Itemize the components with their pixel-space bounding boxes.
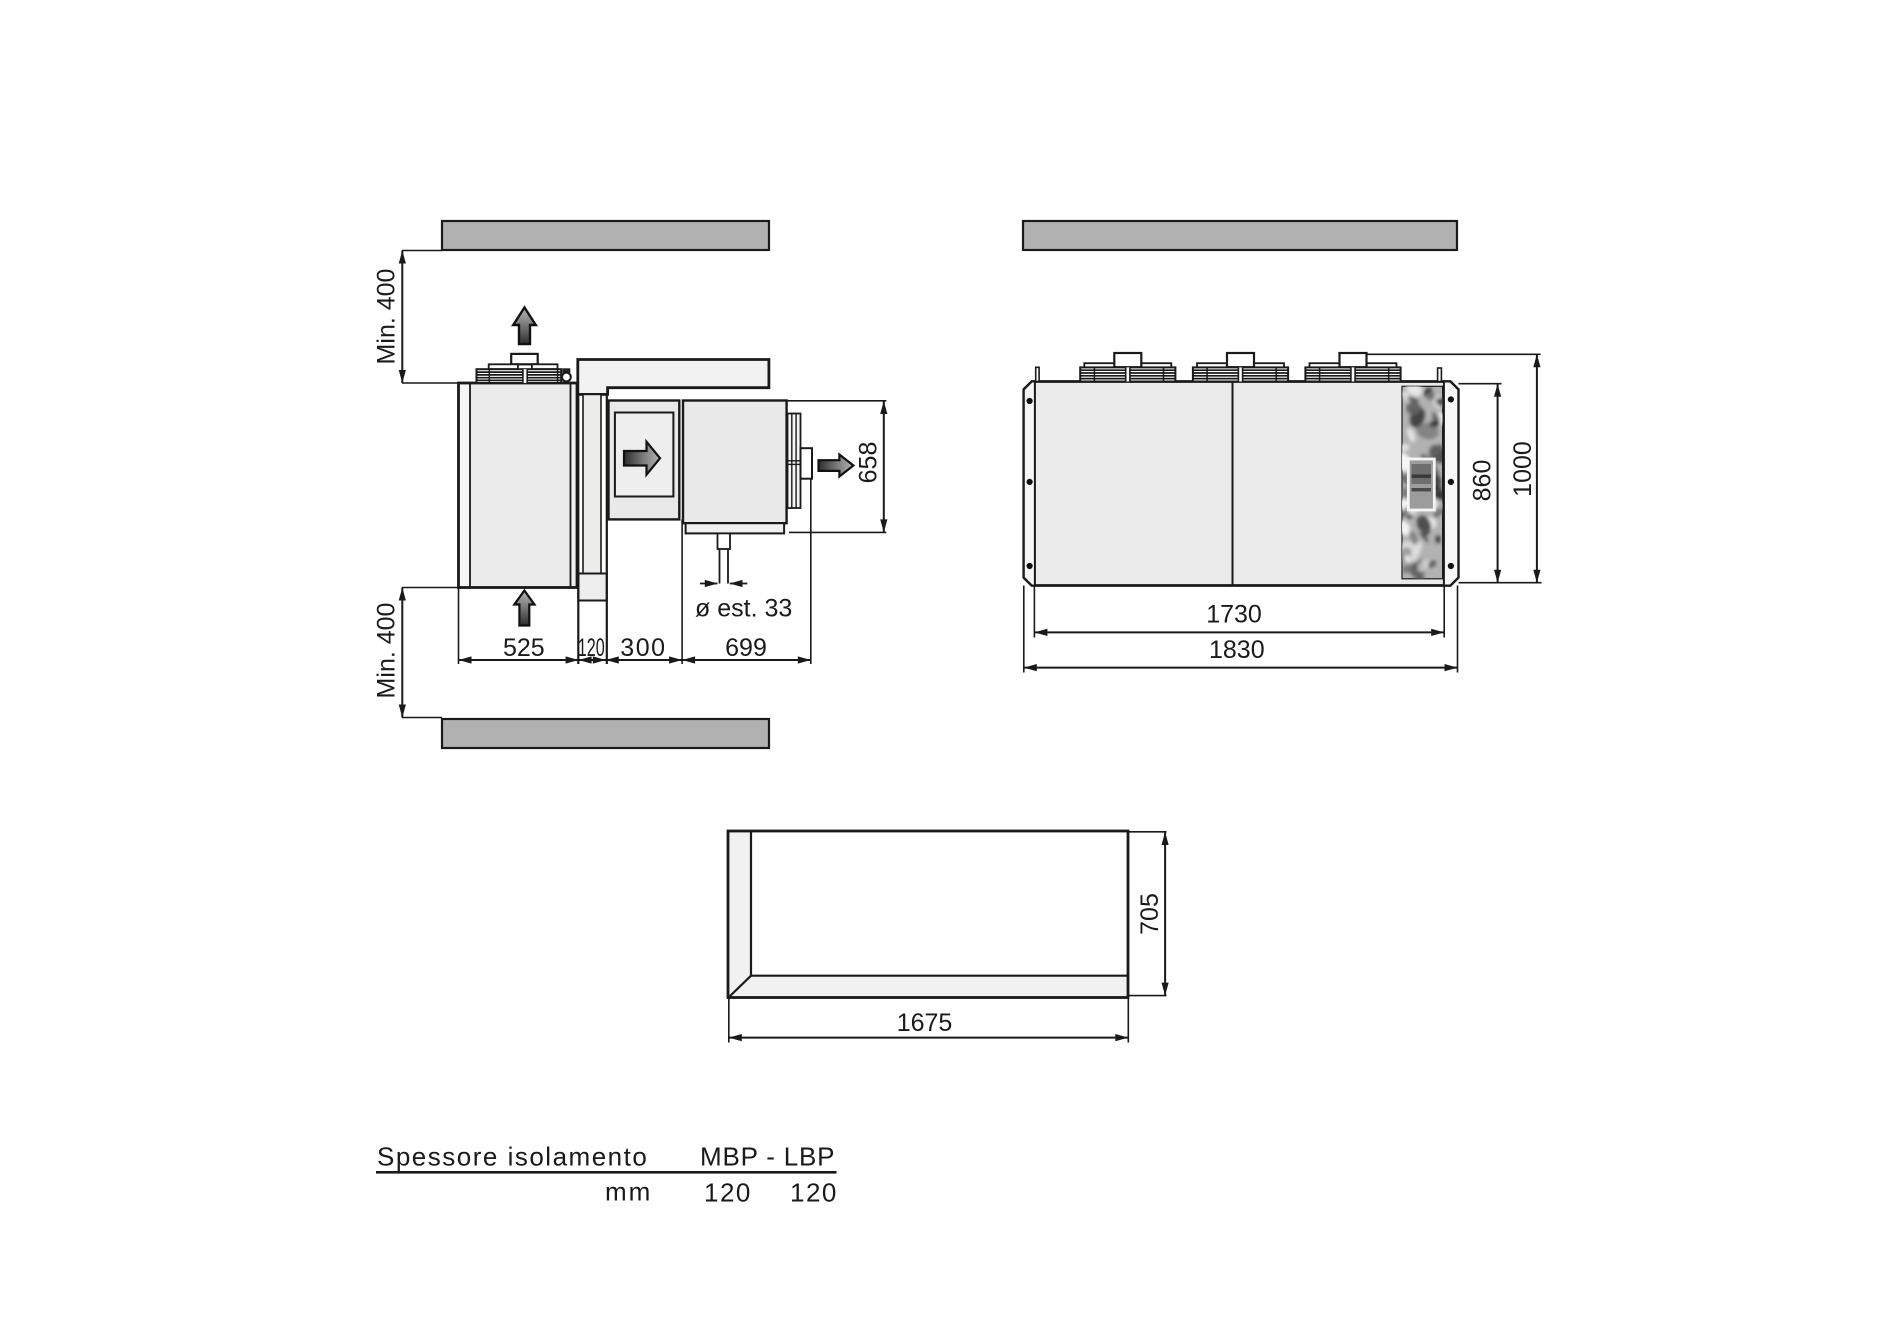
svg-text:699: 699 [725,634,767,662]
svg-text:1830: 1830 [1209,636,1265,664]
svg-text:658: 658 [855,442,883,484]
svg-text:860: 860 [1469,460,1497,502]
svg-text:120: 120 [790,1177,838,1207]
svg-text:ø est. 33: ø est. 33 [695,595,792,623]
svg-text:1675: 1675 [897,1009,953,1037]
svg-text:120: 120 [578,634,605,662]
svg-text:Min. 400: Min. 400 [373,269,401,365]
svg-text:1730: 1730 [1206,601,1262,629]
svg-text:MBP - LBP: MBP - LBP [700,1142,835,1172]
svg-text:300: 300 [620,634,666,662]
svg-text:120: 120 [704,1177,752,1207]
svg-text:1000: 1000 [1509,441,1537,497]
svg-text:525: 525 [503,634,545,662]
svg-text:Min. 400: Min. 400 [373,603,401,699]
svg-text:mm: mm [605,1177,652,1207]
svg-text:705: 705 [1136,893,1164,935]
svg-text:Spessore isolamento: Spessore isolamento [377,1142,648,1172]
